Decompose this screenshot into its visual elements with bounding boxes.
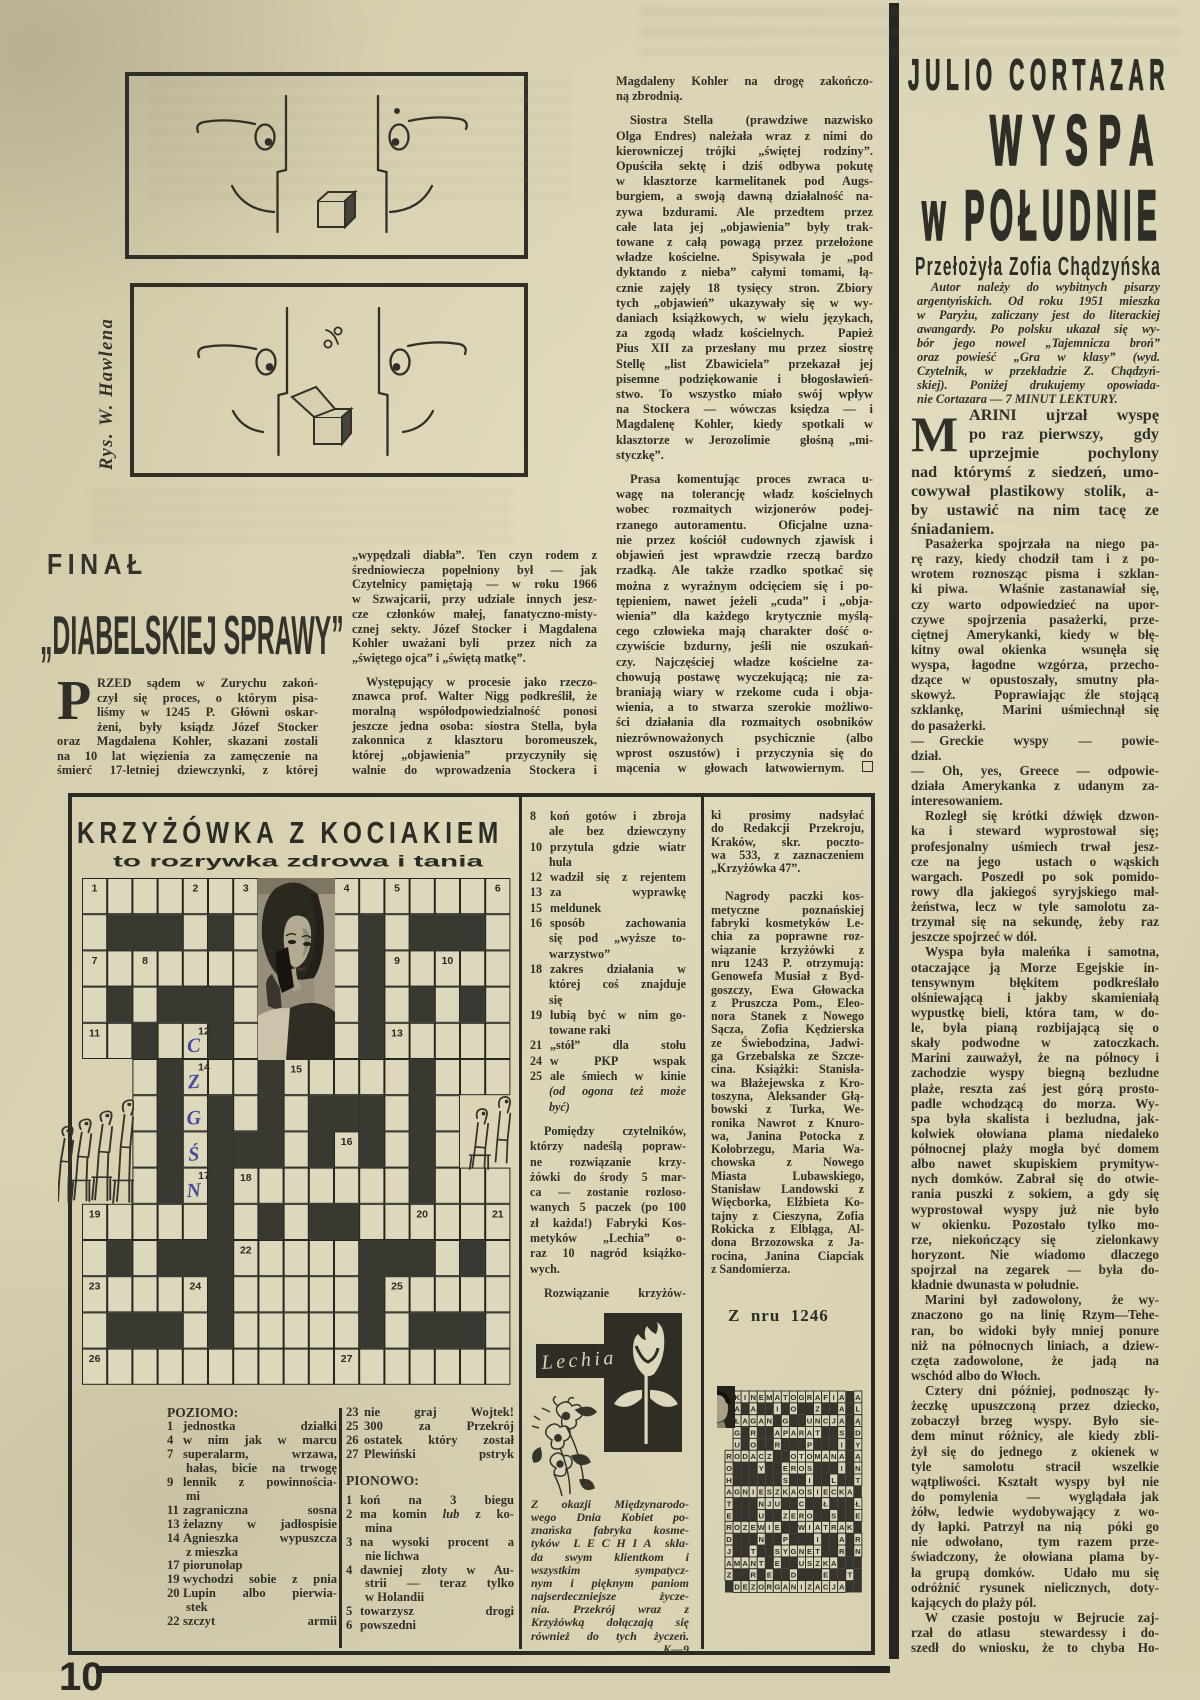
svg-text:O: O bbox=[726, 1464, 732, 1473]
svg-text:N: N bbox=[758, 1500, 763, 1509]
svg-text:U: U bbox=[807, 1417, 813, 1426]
svg-text:P: P bbox=[783, 1428, 788, 1437]
svg-text:A: A bbox=[791, 1488, 797, 1497]
svg-text:J: J bbox=[767, 1500, 771, 1509]
svg-text:I: I bbox=[808, 1523, 810, 1532]
svg-text:M: M bbox=[734, 1559, 740, 1568]
svg-text:A: A bbox=[815, 1523, 821, 1532]
svg-text:R: R bbox=[831, 1523, 837, 1532]
svg-text:W: W bbox=[798, 1523, 806, 1532]
svg-text:E: E bbox=[855, 1511, 860, 1520]
svg-text:S: S bbox=[807, 1559, 812, 1568]
svg-text:A: A bbox=[750, 1452, 756, 1461]
svg-text:w POŁUDNIE: w POŁUDNIE bbox=[921, 180, 1162, 245]
svg-text:N: N bbox=[791, 1582, 796, 1591]
svg-text:A: A bbox=[839, 1452, 845, 1461]
svg-text:I: I bbox=[800, 1582, 802, 1591]
svg-text:T: T bbox=[815, 1547, 820, 1556]
svg-text:I: I bbox=[776, 1405, 778, 1414]
svg-text:E: E bbox=[751, 1523, 756, 1532]
svg-text:A: A bbox=[839, 1582, 845, 1591]
svg-text:8: 8 bbox=[142, 955, 148, 967]
svg-text:K: K bbox=[847, 1523, 853, 1532]
svg-text:16: 16 bbox=[341, 1136, 353, 1148]
svg-text:T: T bbox=[783, 1393, 788, 1402]
svg-text:23: 23 bbox=[89, 1281, 101, 1293]
svg-text:27: 27 bbox=[341, 1353, 353, 1365]
svg-text:K: K bbox=[823, 1559, 829, 1568]
svg-text:I: I bbox=[841, 1440, 843, 1449]
svg-text:R: R bbox=[807, 1393, 813, 1402]
svg-text:C: C bbox=[799, 1500, 805, 1509]
svg-text:G: G bbox=[774, 1582, 780, 1591]
svg-text:20: 20 bbox=[416, 1208, 428, 1220]
svg-text:E: E bbox=[759, 1393, 764, 1402]
svg-text:O: O bbox=[790, 1452, 796, 1461]
svg-text:U: U bbox=[775, 1500, 781, 1509]
svg-text:C: C bbox=[823, 1417, 829, 1426]
svg-text:E: E bbox=[759, 1488, 764, 1497]
svg-text:A: A bbox=[734, 1405, 740, 1414]
svg-text:9: 9 bbox=[394, 955, 400, 967]
svg-text:D: D bbox=[734, 1582, 740, 1591]
svg-text:A: A bbox=[791, 1428, 797, 1437]
svg-text:7: 7 bbox=[92, 955, 98, 967]
svg-text:Z: Z bbox=[783, 1511, 788, 1520]
svg-text:3: 3 bbox=[243, 883, 249, 895]
svg-text:M: M bbox=[814, 1452, 820, 1461]
svg-text:A: A bbox=[831, 1559, 837, 1568]
svg-text:Z: Z bbox=[807, 1582, 812, 1591]
svg-text:11: 11 bbox=[89, 1027, 100, 1039]
svg-text:R: R bbox=[855, 1535, 861, 1544]
svg-text:P: P bbox=[807, 1440, 812, 1449]
svg-text:A: A bbox=[742, 1559, 748, 1568]
svg-text:T: T bbox=[815, 1428, 820, 1437]
svg-text:24: 24 bbox=[190, 1281, 202, 1293]
svg-text:O: O bbox=[807, 1452, 813, 1461]
svg-text:I: I bbox=[752, 1488, 754, 1497]
svg-text:25: 25 bbox=[391, 1281, 403, 1293]
svg-text:JULIO CORTAZAR: JULIO CORTAZAR bbox=[908, 52, 1170, 97]
svg-text:R: R bbox=[750, 1571, 756, 1580]
svg-text:A: A bbox=[775, 1428, 781, 1437]
svg-text:O: O bbox=[807, 1511, 813, 1520]
svg-text:5: 5 bbox=[394, 883, 400, 895]
svg-text:I: I bbox=[833, 1393, 835, 1402]
svg-text:E: E bbox=[783, 1464, 788, 1473]
svg-text:T: T bbox=[847, 1571, 852, 1580]
svg-text:A: A bbox=[823, 1452, 829, 1461]
svg-text:U: U bbox=[734, 1440, 740, 1449]
svg-text:E: E bbox=[823, 1571, 828, 1580]
svg-text:Y: Y bbox=[855, 1440, 860, 1449]
svg-text:E: E bbox=[767, 1571, 772, 1580]
svg-text:I: I bbox=[808, 1476, 810, 1485]
svg-text:Z: Z bbox=[815, 1405, 820, 1414]
svg-text:A: A bbox=[726, 1559, 732, 1568]
svg-text:A: A bbox=[839, 1393, 845, 1402]
svg-text:A: A bbox=[855, 1393, 861, 1402]
svg-text:O: O bbox=[734, 1523, 740, 1532]
svg-text:18: 18 bbox=[240, 1172, 252, 1184]
svg-text:T: T bbox=[759, 1559, 764, 1568]
svg-text:S: S bbox=[807, 1488, 812, 1497]
svg-text:G: G bbox=[782, 1417, 788, 1426]
svg-text:N: N bbox=[831, 1452, 836, 1461]
svg-text:C: C bbox=[823, 1582, 829, 1591]
svg-text:D: D bbox=[855, 1428, 861, 1437]
svg-text:A: A bbox=[750, 1405, 756, 1414]
svg-text:R: R bbox=[839, 1547, 845, 1556]
svg-text:Przełożyła Zofia Chądzyńska: Przełożyła Zofia Chądzyńska bbox=[915, 253, 1161, 281]
svg-text:K: K bbox=[734, 1393, 740, 1402]
svg-text:T: T bbox=[823, 1523, 828, 1532]
svg-text:Z: Z bbox=[815, 1559, 820, 1568]
svg-text:Ł: Ł bbox=[856, 1500, 861, 1509]
svg-text:Y: Y bbox=[783, 1547, 788, 1556]
svg-text:A: A bbox=[839, 1405, 845, 1414]
svg-text:G: G bbox=[799, 1393, 805, 1402]
svg-text:6: 6 bbox=[495, 883, 501, 895]
svg-text:21: 21 bbox=[492, 1208, 504, 1220]
svg-text:K: K bbox=[783, 1488, 789, 1497]
svg-text:Z: Z bbox=[743, 1523, 748, 1532]
svg-text:G: G bbox=[790, 1547, 796, 1556]
svg-text:WYSPA: WYSPA bbox=[990, 105, 1164, 170]
svg-text:T: T bbox=[856, 1476, 861, 1485]
svg-text:S: S bbox=[807, 1464, 812, 1473]
svg-text:N: N bbox=[815, 1417, 820, 1426]
svg-text:S: S bbox=[775, 1547, 780, 1556]
svg-text:J: J bbox=[832, 1582, 836, 1591]
svg-text:I: I bbox=[817, 1535, 819, 1544]
svg-text:N: N bbox=[799, 1547, 804, 1556]
svg-text:A: A bbox=[726, 1488, 732, 1497]
svg-text:R: R bbox=[726, 1452, 732, 1461]
svg-text:C: C bbox=[186, 1034, 202, 1057]
svg-text:N: N bbox=[750, 1393, 755, 1402]
svg-text:J: J bbox=[727, 1547, 731, 1556]
svg-text:S: S bbox=[783, 1476, 788, 1485]
svg-text:N: N bbox=[767, 1417, 772, 1426]
svg-text:D: D bbox=[726, 1535, 732, 1544]
svg-text:U: U bbox=[799, 1559, 805, 1568]
svg-text:22: 22 bbox=[240, 1245, 252, 1257]
svg-text:C: C bbox=[831, 1488, 837, 1497]
svg-text:L: L bbox=[831, 1476, 836, 1485]
svg-text:O: O bbox=[750, 1440, 756, 1449]
svg-text:O: O bbox=[758, 1582, 764, 1591]
svg-text:T: T bbox=[751, 1547, 756, 1556]
svg-text:O: O bbox=[799, 1464, 805, 1473]
svg-text:L: L bbox=[856, 1405, 861, 1414]
svg-text:A: A bbox=[807, 1428, 813, 1437]
svg-text:A: A bbox=[783, 1582, 789, 1591]
svg-text:U: U bbox=[758, 1511, 764, 1520]
svg-text:H: H bbox=[726, 1476, 731, 1485]
svg-text:Z: Z bbox=[775, 1488, 780, 1497]
svg-text:Ą: Ą bbox=[855, 1417, 861, 1426]
svg-text:12: 12 bbox=[198, 1025, 210, 1037]
svg-text:A: A bbox=[815, 1393, 821, 1402]
svg-text:C: C bbox=[758, 1452, 764, 1461]
svg-text:Ą: Ą bbox=[855, 1452, 861, 1461]
svg-text:1: 1 bbox=[92, 883, 98, 895]
svg-text:G: G bbox=[186, 1107, 202, 1130]
svg-text:R: R bbox=[775, 1440, 781, 1449]
svg-text:O: O bbox=[790, 1393, 796, 1402]
svg-text:N: N bbox=[758, 1535, 763, 1544]
svg-text:15: 15 bbox=[290, 1064, 302, 1076]
svg-text:Z: Z bbox=[727, 1571, 732, 1580]
svg-text:Ł: Ł bbox=[735, 1417, 740, 1426]
svg-text:E: E bbox=[807, 1547, 812, 1556]
svg-text:G: G bbox=[734, 1488, 740, 1497]
svg-text:E: E bbox=[775, 1559, 780, 1568]
svg-text:A: A bbox=[839, 1417, 845, 1426]
svg-text:G: G bbox=[734, 1428, 740, 1437]
svg-text:S: S bbox=[831, 1511, 836, 1520]
svg-text:Z: Z bbox=[186, 1071, 201, 1094]
svg-text:R: R bbox=[799, 1511, 805, 1520]
svg-text:F: F bbox=[823, 1393, 828, 1402]
svg-text:Y: Y bbox=[759, 1464, 764, 1473]
svg-text:E: E bbox=[775, 1523, 780, 1532]
svg-text:J: J bbox=[832, 1417, 836, 1426]
svg-text:G: G bbox=[750, 1417, 756, 1426]
svg-text:D: D bbox=[791, 1571, 797, 1580]
svg-text:19: 19 bbox=[89, 1208, 101, 1220]
svg-text:A: A bbox=[815, 1582, 821, 1591]
svg-text:14: 14 bbox=[198, 1062, 210, 1074]
svg-text:I: I bbox=[768, 1523, 770, 1532]
svg-text:Ł: Ł bbox=[823, 1500, 828, 1509]
svg-text:E: E bbox=[726, 1511, 731, 1520]
svg-text:W: W bbox=[758, 1523, 766, 1532]
svg-text:R: R bbox=[767, 1582, 773, 1591]
svg-text:S: S bbox=[839, 1428, 844, 1437]
svg-text:S: S bbox=[767, 1488, 772, 1497]
svg-text:A: A bbox=[742, 1417, 748, 1426]
svg-text:M: M bbox=[766, 1393, 772, 1402]
svg-text:E: E bbox=[743, 1582, 748, 1591]
svg-text:T: T bbox=[799, 1452, 804, 1461]
svg-text:O: O bbox=[734, 1452, 740, 1461]
svg-text:N: N bbox=[855, 1464, 860, 1473]
svg-text:Z: Z bbox=[767, 1452, 772, 1461]
svg-text:4: 4 bbox=[344, 883, 350, 895]
svg-text:Ś: Ś bbox=[187, 1141, 200, 1166]
svg-text:I: I bbox=[817, 1488, 819, 1497]
svg-text:A: A bbox=[758, 1417, 764, 1426]
svg-text:N: N bbox=[855, 1547, 860, 1556]
svg-text:R: R bbox=[750, 1428, 756, 1437]
svg-text:26: 26 bbox=[89, 1353, 101, 1365]
svg-text:P: P bbox=[783, 1535, 788, 1544]
svg-text:I: I bbox=[841, 1464, 843, 1473]
svg-text:2: 2 bbox=[192, 883, 198, 895]
svg-text:N: N bbox=[750, 1559, 755, 1568]
svg-text:O: O bbox=[799, 1488, 805, 1497]
svg-text:A: A bbox=[839, 1535, 845, 1544]
svg-text:T: T bbox=[727, 1500, 732, 1509]
svg-text:A: A bbox=[775, 1393, 781, 1402]
svg-text:A: A bbox=[847, 1488, 853, 1497]
svg-text:I: I bbox=[744, 1393, 746, 1402]
svg-text:O: O bbox=[790, 1405, 796, 1414]
svg-text:E: E bbox=[791, 1511, 796, 1520]
svg-text:13: 13 bbox=[391, 1027, 403, 1039]
svg-text:10: 10 bbox=[442, 955, 454, 967]
svg-text:Z: Z bbox=[751, 1582, 756, 1591]
svg-text:R: R bbox=[799, 1428, 805, 1437]
svg-text:R: R bbox=[726, 1523, 732, 1532]
svg-text:E: E bbox=[823, 1488, 828, 1497]
svg-text:D: D bbox=[742, 1452, 748, 1461]
svg-text:K: K bbox=[839, 1488, 845, 1497]
svg-text:R: R bbox=[791, 1464, 797, 1473]
svg-text:N: N bbox=[742, 1488, 747, 1497]
svg-text:A: A bbox=[839, 1523, 845, 1532]
